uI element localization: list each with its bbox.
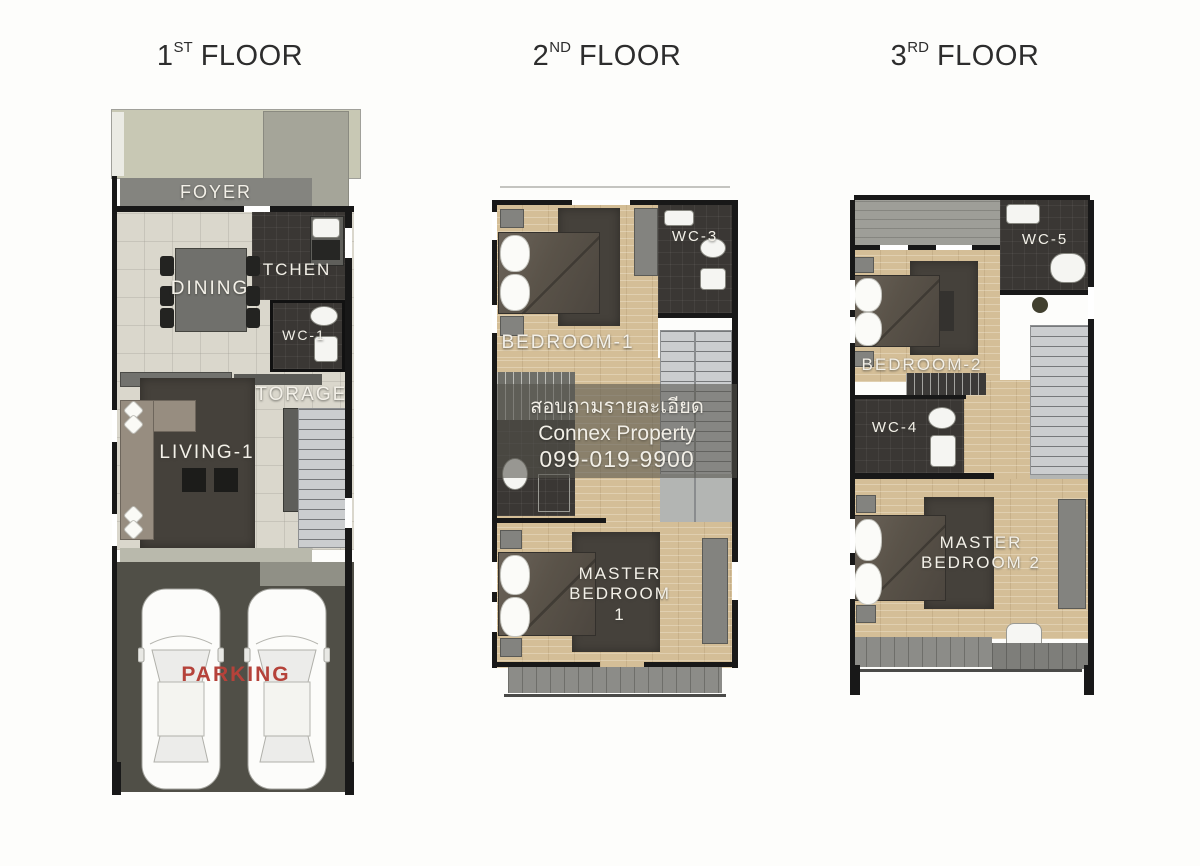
balcony-rail	[504, 694, 726, 697]
nightstand	[500, 638, 522, 657]
car-icon	[138, 586, 224, 792]
window-gap	[345, 498, 352, 528]
window-gap	[850, 317, 855, 343]
floor3-title-word: FLOOR	[937, 40, 1039, 72]
stove-icon	[312, 240, 340, 260]
wall-post	[345, 762, 354, 795]
window-gap	[850, 519, 855, 553]
stair-landing	[660, 474, 732, 522]
watermark: สอบถามรายละเอียด Connex Property 099-019…	[497, 384, 737, 478]
shower-icon	[930, 435, 956, 467]
yard-walkway	[112, 112, 124, 176]
setback-line	[500, 186, 730, 188]
window-gap	[492, 305, 497, 333]
window-gap	[345, 228, 352, 258]
floor2-title: 2NDFLOOR	[517, 40, 697, 73]
coffee-table	[214, 468, 238, 492]
floor1-title-word: FLOOR	[201, 40, 303, 72]
master2-label: MASTER BEDROOM 2	[916, 533, 1046, 574]
coffee-table	[182, 468, 206, 492]
floor3-plan: WC-5 BEDROOM-2 WC-4 MASTER BEDROOM	[850, 175, 1095, 695]
wall	[496, 518, 606, 523]
master1-label: MASTER BEDROOM 1	[566, 564, 674, 625]
staircase	[298, 408, 348, 548]
stair-handrail	[283, 408, 299, 512]
nightstand	[500, 530, 522, 549]
floor1-plan: FOYER KITCHEN WC-1 DINING STORAGE	[112, 110, 360, 795]
nightstand	[856, 495, 876, 513]
balcony-rail	[860, 669, 1082, 672]
parking-label: PARKING	[176, 662, 296, 687]
floorplan-canvas: 1STFLOOR 2NDFLOOR 3RDFLOOR FOYER KITCHEN…	[0, 0, 1200, 866]
balcony	[852, 637, 992, 667]
plant-icon	[1032, 297, 1048, 313]
wall	[658, 313, 732, 318]
wall	[1000, 290, 1090, 295]
wc4-label: WC-4	[862, 419, 928, 437]
basin-icon	[1006, 204, 1040, 224]
bed-pillow	[854, 519, 882, 561]
shower-icon	[538, 474, 570, 512]
window-gap	[1088, 287, 1094, 319]
bed-pillow	[500, 274, 530, 311]
basin-icon	[664, 210, 694, 226]
window-gap	[732, 562, 738, 600]
bedroom1-label: BEDROOM-1	[500, 332, 636, 355]
wall	[345, 206, 352, 766]
dining-label: DINING	[148, 278, 272, 301]
floor1-title: 1STFLOOR	[140, 40, 320, 73]
car-icon	[244, 586, 330, 792]
bed-pillow	[500, 597, 530, 637]
window-gap	[492, 602, 497, 632]
wall-post	[1084, 665, 1094, 695]
floor2-title-word: FLOOR	[579, 40, 681, 72]
sink-icon	[312, 218, 340, 238]
balcony	[992, 643, 1090, 669]
wall-post	[112, 762, 121, 795]
watermark-line3: 099-019-9900	[539, 446, 694, 473]
floor1-title-ordinal: ST	[174, 39, 193, 56]
window-gap	[492, 212, 497, 240]
dresser	[1058, 499, 1086, 609]
bookshelf	[906, 373, 986, 395]
watermark-line2: Connex Property	[538, 422, 696, 446]
window-gap	[112, 514, 117, 546]
floor3-title: 3RDFLOOR	[875, 40, 1055, 73]
bed-pillow	[854, 563, 882, 605]
nightstand	[854, 257, 874, 273]
window-gap	[850, 280, 855, 310]
nightstand	[500, 209, 524, 228]
living-label: LIVING-1	[150, 442, 264, 465]
nightstand	[856, 605, 876, 623]
wc1-label: WC-1	[272, 327, 336, 344]
floor2-title-number: 2	[533, 40, 550, 72]
floor2-title-ordinal: ND	[549, 39, 571, 56]
bathtub-icon	[1050, 253, 1086, 283]
shower-icon	[700, 268, 726, 290]
toilet-icon	[310, 306, 338, 326]
wardrobe	[702, 538, 728, 644]
wc5-label: WC-5	[1008, 231, 1082, 249]
window-gap	[850, 565, 855, 599]
parking-step	[260, 562, 350, 586]
wall-post	[850, 665, 860, 695]
wall	[112, 176, 117, 795]
bed-bench	[940, 291, 954, 331]
foyer-label: FOYER	[120, 182, 312, 204]
terrace	[854, 200, 1000, 247]
bed-pillow	[500, 555, 530, 595]
staircase	[1030, 325, 1090, 475]
wc3-label: WC-3	[662, 228, 728, 246]
wall	[1088, 200, 1094, 665]
garage-threshold	[120, 548, 312, 562]
floor3-title-ordinal: RD	[907, 39, 929, 56]
wardrobe	[634, 208, 658, 276]
bed-pillow	[500, 235, 530, 272]
balcony	[508, 667, 722, 693]
window-gap	[112, 410, 117, 442]
toilet-icon	[928, 407, 956, 429]
watermark-line1: สอบถามรายละเอียด	[530, 390, 704, 422]
window-gap	[492, 562, 497, 592]
floor1-title-number: 1	[157, 40, 174, 72]
bed-pillow	[854, 312, 882, 346]
floor3-title-number: 3	[891, 40, 908, 72]
bed-pillow	[854, 278, 882, 312]
